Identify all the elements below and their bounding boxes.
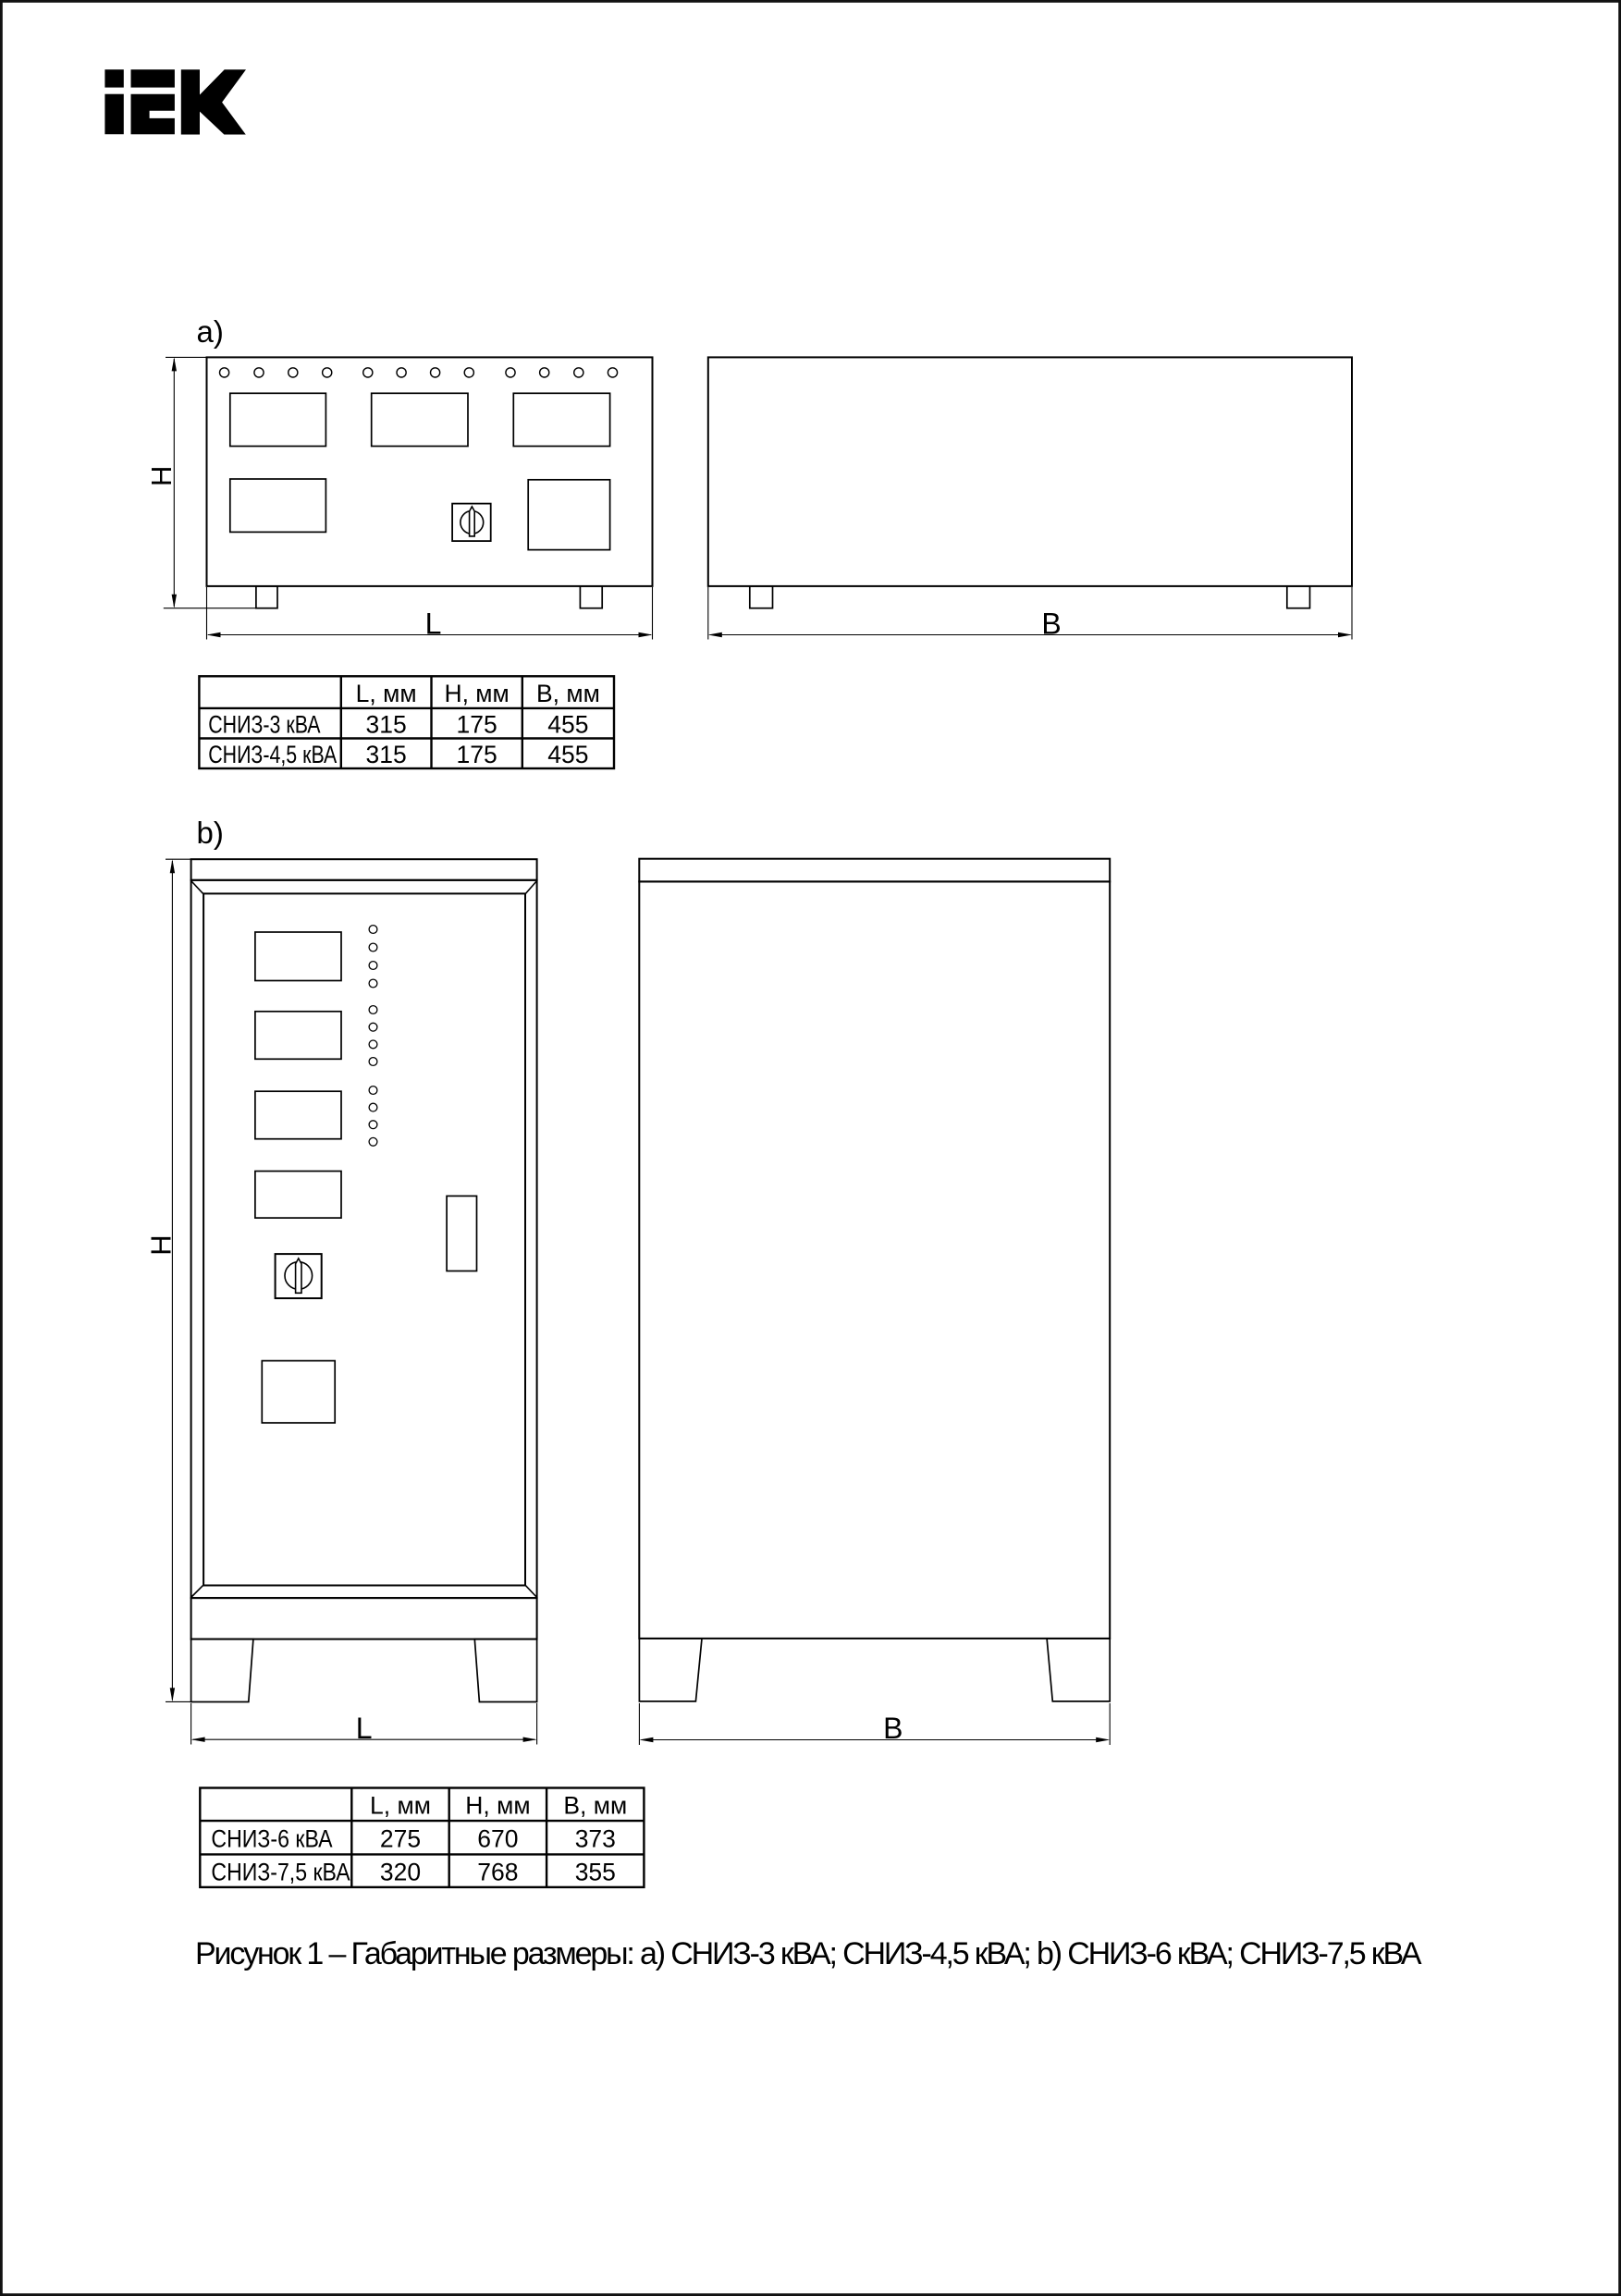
svg-text:СНИЗ-4,5 кВА: СНИЗ-4,5 кВА xyxy=(208,741,337,768)
svg-text:355: 355 xyxy=(575,1859,616,1886)
svg-text:320: 320 xyxy=(380,1859,421,1886)
svg-text:315: 315 xyxy=(365,741,406,768)
svg-text:B: B xyxy=(1041,608,1061,641)
svg-text:a): a) xyxy=(197,314,224,349)
svg-text:175: 175 xyxy=(456,741,497,768)
svg-text:L: L xyxy=(356,1712,373,1745)
svg-text:455: 455 xyxy=(547,741,588,768)
svg-text:b): b) xyxy=(197,816,224,850)
svg-text:В, мм: В, мм xyxy=(563,1792,627,1820)
svg-text:175: 175 xyxy=(456,711,497,739)
svg-text:373: 373 xyxy=(575,1825,616,1853)
svg-text:L: L xyxy=(425,608,442,641)
svg-text:H, мм: H, мм xyxy=(444,680,509,707)
svg-text:275: 275 xyxy=(380,1825,421,1853)
svg-text:315: 315 xyxy=(365,711,406,739)
svg-text:H: H xyxy=(145,1234,178,1255)
svg-text:СНИЗ-7,5 кВА: СНИЗ-7,5 кВА xyxy=(211,1859,350,1886)
svg-text:H: H xyxy=(145,466,178,486)
svg-text:L, мм: L, мм xyxy=(370,1792,431,1820)
svg-text:768: 768 xyxy=(477,1859,518,1886)
svg-text:СНИЗ-6 кВА: СНИЗ-6 кВА xyxy=(211,1825,332,1853)
svg-text:455: 455 xyxy=(547,711,588,739)
svg-text:H, мм: H, мм xyxy=(465,1792,530,1820)
svg-text:670: 670 xyxy=(477,1825,518,1853)
svg-text:СНИЗ-3 кВА: СНИЗ-3 кВА xyxy=(208,711,321,739)
svg-text:В, мм: В, мм xyxy=(536,680,600,707)
svg-text:Рисунок 1 – Габаритные размеры: Рисунок 1 – Габаритные размеры: a) СНИЗ-… xyxy=(195,1936,1422,1971)
svg-text:L, мм: L, мм xyxy=(356,680,417,707)
svg-text:B: B xyxy=(883,1712,903,1745)
